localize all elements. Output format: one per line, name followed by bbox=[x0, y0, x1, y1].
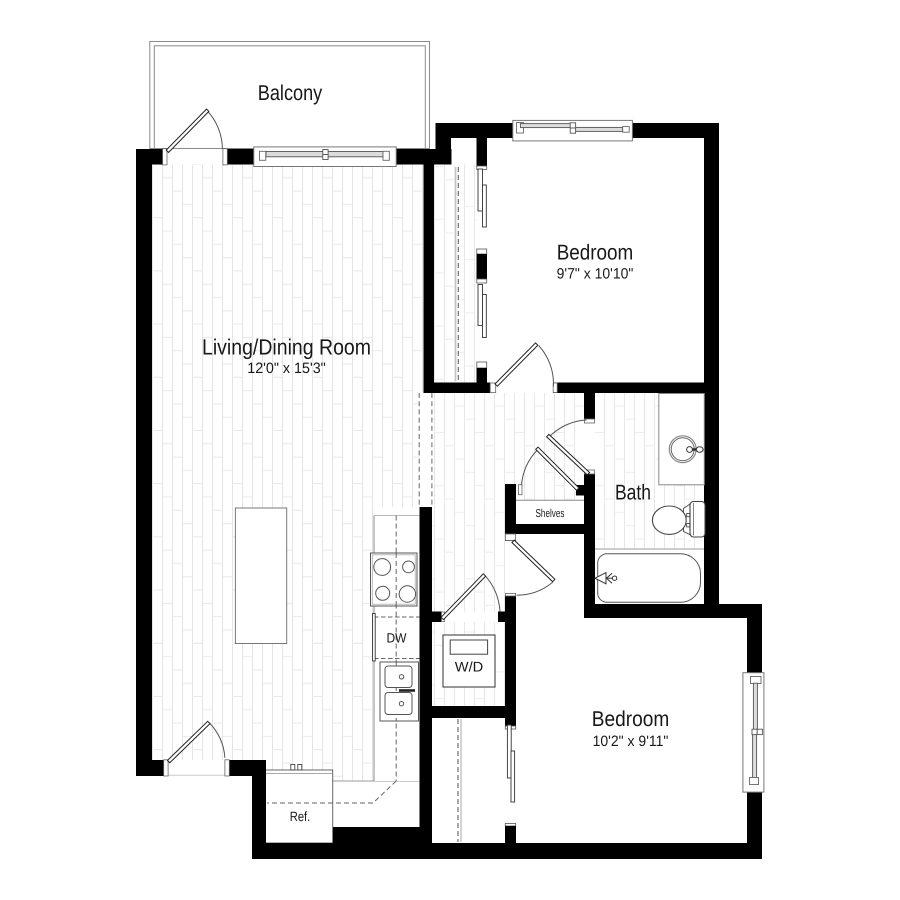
svg-text:Living/Dining Room: Living/Dining Room bbox=[202, 335, 371, 360]
svg-text:Bedroom: Bedroom bbox=[592, 707, 670, 731]
svg-text:Ref.: Ref. bbox=[290, 809, 311, 824]
svg-text:Bath: Bath bbox=[615, 481, 651, 505]
svg-text:9'7" x 10'10": 9'7" x 10'10" bbox=[557, 265, 634, 282]
svg-text:10'2" x 9'11": 10'2" x 9'11" bbox=[593, 733, 669, 750]
svg-text:DW: DW bbox=[387, 631, 407, 646]
svg-text:12'0" x 15'3": 12'0" x 15'3" bbox=[247, 360, 326, 377]
svg-text:W/D: W/D bbox=[455, 659, 484, 675]
svg-text:Shelves: Shelves bbox=[536, 508, 565, 520]
svg-text:Balcony: Balcony bbox=[258, 81, 323, 105]
svg-text:Bedroom: Bedroom bbox=[557, 241, 634, 265]
